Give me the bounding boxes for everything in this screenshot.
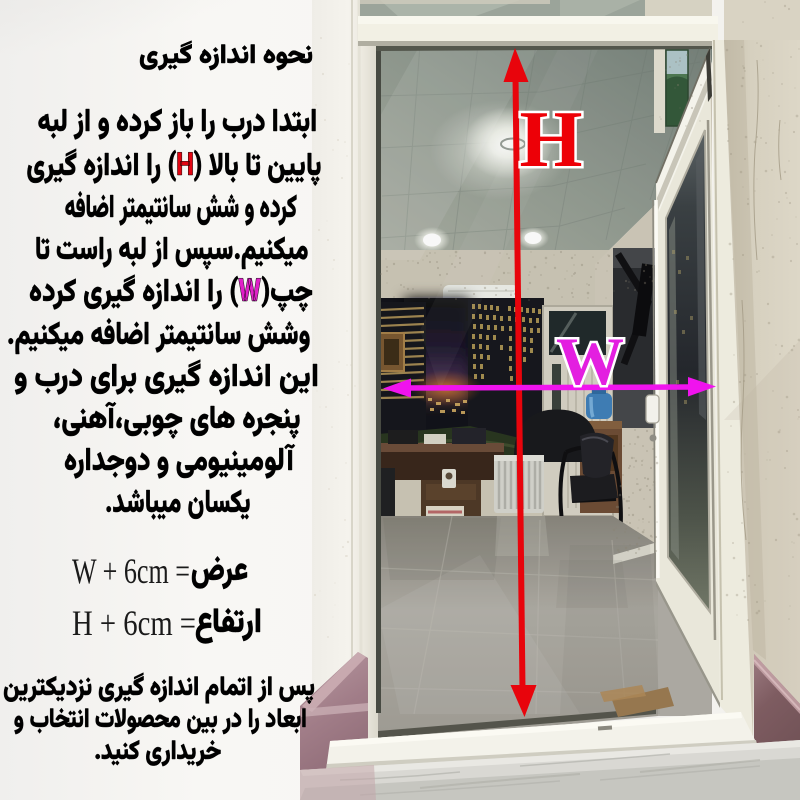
svg-text:W: W <box>556 323 624 399</box>
svg-text:H: H <box>519 94 582 184</box>
svg-text:W + 6cm =: W + 6cm = <box>72 551 190 591</box>
svg-text:H + 6cm =: H + 6cm = <box>72 603 196 643</box>
